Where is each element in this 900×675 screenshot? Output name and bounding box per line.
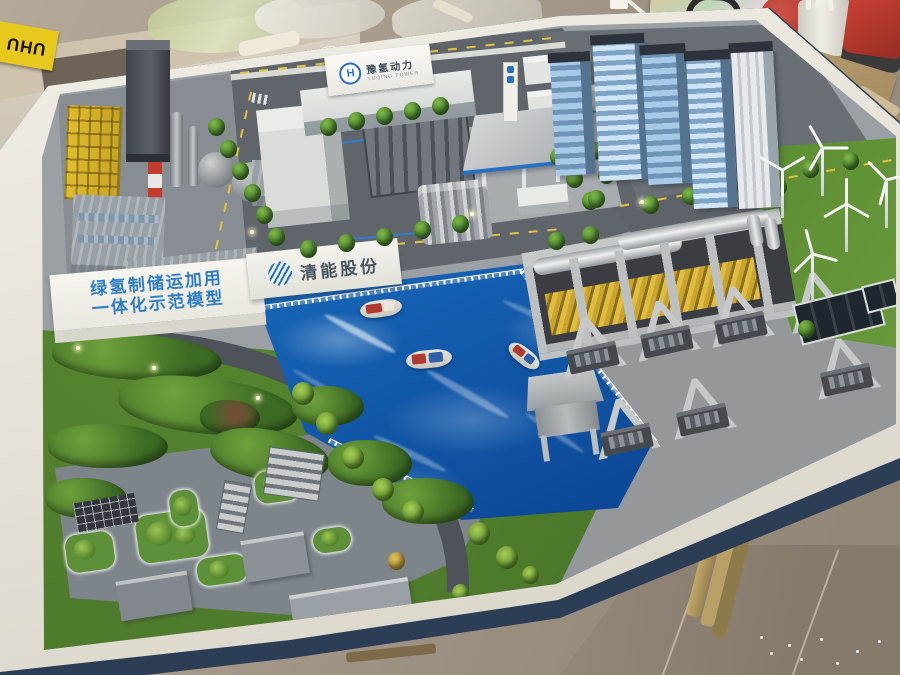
- window-band: [78, 235, 158, 246]
- company-logo-icon: [267, 260, 293, 286]
- island-shrub: [208, 559, 230, 580]
- stepped-rack: [263, 446, 325, 501]
- power-plug: [610, 0, 628, 9]
- tree: [220, 140, 237, 158]
- palm-tree: [316, 412, 338, 435]
- palm-tree: [522, 566, 539, 584]
- tree: [588, 190, 605, 208]
- island-shrub: [172, 495, 193, 517]
- palm-tree: [468, 522, 490, 545]
- turbine-blade: [845, 178, 848, 204]
- turbine-blade: [867, 161, 888, 182]
- platform-leg: [540, 435, 550, 462]
- station-totem-sign: [503, 62, 518, 122]
- highrise-tower: [686, 57, 738, 209]
- turbine-blade: [823, 203, 847, 219]
- floor-debris: [760, 636, 763, 639]
- h-logo-icon: H: [338, 61, 363, 86]
- glue-box-label: UHU: [5, 33, 48, 60]
- tree: [414, 221, 431, 239]
- shrub-cluster: [48, 424, 168, 468]
- tree: [244, 184, 261, 202]
- turbine-blade: [812, 253, 838, 263]
- window-band: [79, 213, 159, 224]
- station-kiosk: [517, 183, 569, 214]
- turbine-blade: [804, 228, 814, 254]
- turbine-blade: [759, 156, 783, 172]
- yellow-lattice-tower: [64, 105, 119, 201]
- tree: [582, 226, 599, 244]
- golden-shrub: [388, 552, 405, 570]
- tree: [256, 206, 273, 224]
- island-shrub: [72, 538, 97, 561]
- wind-turbine: [856, 158, 900, 228]
- garden-lamp: [256, 396, 260, 400]
- highrise-tower: [642, 51, 693, 185]
- tree: [232, 162, 249, 180]
- boat-cargo: [365, 303, 382, 314]
- boat-cargo: [428, 352, 443, 363]
- tree: [376, 228, 393, 246]
- tree: [208, 118, 225, 136]
- turbine-blade: [823, 147, 849, 150]
- palm-tree: [342, 446, 364, 469]
- tree: [404, 102, 421, 120]
- palm-tree: [292, 382, 314, 405]
- tree: [548, 232, 565, 250]
- highrise-tower: [550, 59, 596, 176]
- turbine-blade: [808, 125, 824, 149]
- material-rod: [827, 0, 834, 11]
- tree: [642, 196, 659, 214]
- gate-sign-text: 豫氢动力 YUQING POWER: [365, 55, 419, 82]
- totem-logo: [507, 66, 514, 73]
- island-shrub: [174, 525, 196, 546]
- street-lamp: [250, 230, 254, 234]
- tree: [348, 112, 365, 130]
- tree: [432, 97, 449, 115]
- palm-tree: [372, 478, 394, 501]
- boat-cabin: [383, 301, 394, 311]
- tree: [300, 240, 317, 258]
- process-tower-dark: [126, 40, 170, 162]
- palm-tree: [402, 500, 424, 523]
- island-shrub: [320, 529, 340, 547]
- tree: [338, 234, 355, 252]
- wind-turbine: [782, 232, 842, 302]
- process-column: [188, 126, 198, 186]
- turbine-blade: [886, 172, 900, 182]
- planting-island: [64, 530, 117, 574]
- turbine-blade: [781, 170, 784, 196]
- process-column: [170, 112, 183, 187]
- workshop-photo: UHU: [0, 0, 900, 675]
- glue-box: UHU: [0, 21, 59, 71]
- totem-logo: [507, 76, 514, 83]
- palm-tree: [496, 546, 518, 569]
- tree: [376, 107, 393, 125]
- material-rod: [806, 0, 811, 10]
- shrub-cluster: [328, 440, 412, 486]
- street-lamp: [470, 212, 474, 216]
- boat-cargo: [523, 353, 536, 365]
- island-shrub: [145, 520, 174, 547]
- street-lamp: [640, 200, 644, 204]
- tree: [452, 215, 469, 233]
- tree: [798, 320, 815, 338]
- floor-grout-line: [783, 549, 840, 675]
- turbine-pole: [811, 254, 814, 302]
- boat-cargo: [411, 353, 426, 364]
- garden-lamp: [76, 346, 80, 350]
- garden-lamp: [152, 366, 156, 370]
- tree: [320, 118, 337, 136]
- turbine-pole: [845, 204, 848, 252]
- shrub-cluster: [382, 478, 474, 524]
- tree: [268, 228, 285, 246]
